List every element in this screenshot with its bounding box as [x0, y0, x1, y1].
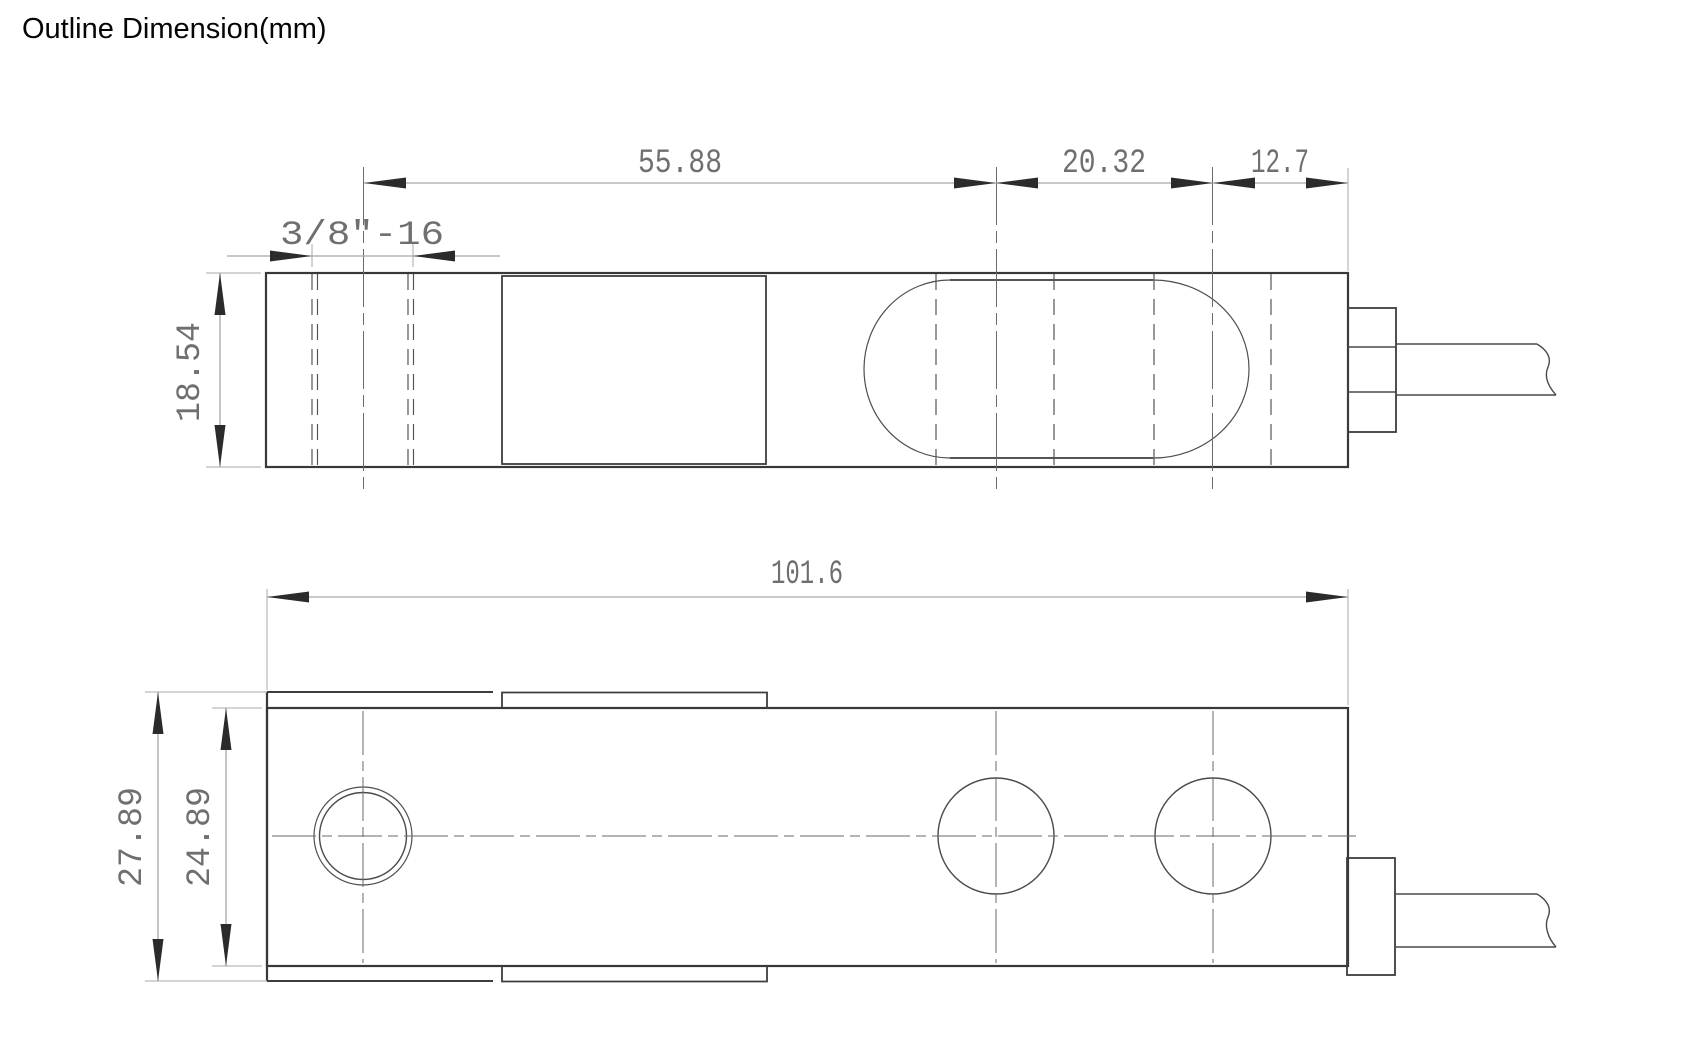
dim-label-overall-width: 27.89	[114, 787, 152, 887]
side-view-pocket	[502, 276, 766, 464]
plan-cable	[1395, 894, 1556, 947]
dim-label-thread-to-first-hole: 55.88	[638, 145, 722, 183]
cable-gland	[1347, 858, 1395, 975]
plan-view-body	[267, 708, 1348, 966]
side-view-body	[266, 273, 1348, 467]
dim-label-thread-spec: 3/8″-16	[280, 217, 444, 255]
dim-body-height: 18.54	[172, 273, 261, 467]
dim-label-overall-length: 101.6	[771, 556, 843, 594]
side-view-centerlines	[364, 167, 1213, 492]
plan-view: 101.6 27.89 24.89	[114, 556, 1556, 982]
dim-label-hole-spacing: 20.32	[1062, 145, 1146, 183]
cable	[1396, 344, 1556, 395]
blind-recess-outline	[864, 280, 1249, 458]
dim-body-width: 24.89	[182, 708, 262, 966]
cable-connector	[1348, 308, 1396, 432]
outline-drawing: Outline Dimension(mm)	[0, 0, 1704, 1046]
raised-tabs	[502, 693, 767, 982]
page-title: Outline Dimension(mm)	[22, 13, 327, 45]
plan-view-centerlines	[272, 711, 1356, 963]
side-view: 55.88 20.32 12.7 3/8″-16 18.54	[172, 145, 1556, 492]
dim-label-body-height: 18.54	[172, 322, 210, 422]
dim-chain-horizontal: 55.88 20.32 12.7	[364, 145, 1348, 271]
dim-overall-width: 27.89	[114, 692, 164, 981]
thread-hidden-lines	[312, 274, 414, 466]
dim-label-hole-to-end: 12.7	[1251, 145, 1309, 183]
dim-label-body-width: 24.89	[182, 787, 220, 887]
dim-overall-length: 101.6	[267, 556, 1348, 705]
drawing-page: Outline Dimension(mm)	[0, 0, 1704, 1046]
hole-hidden-lines	[936, 274, 1271, 466]
